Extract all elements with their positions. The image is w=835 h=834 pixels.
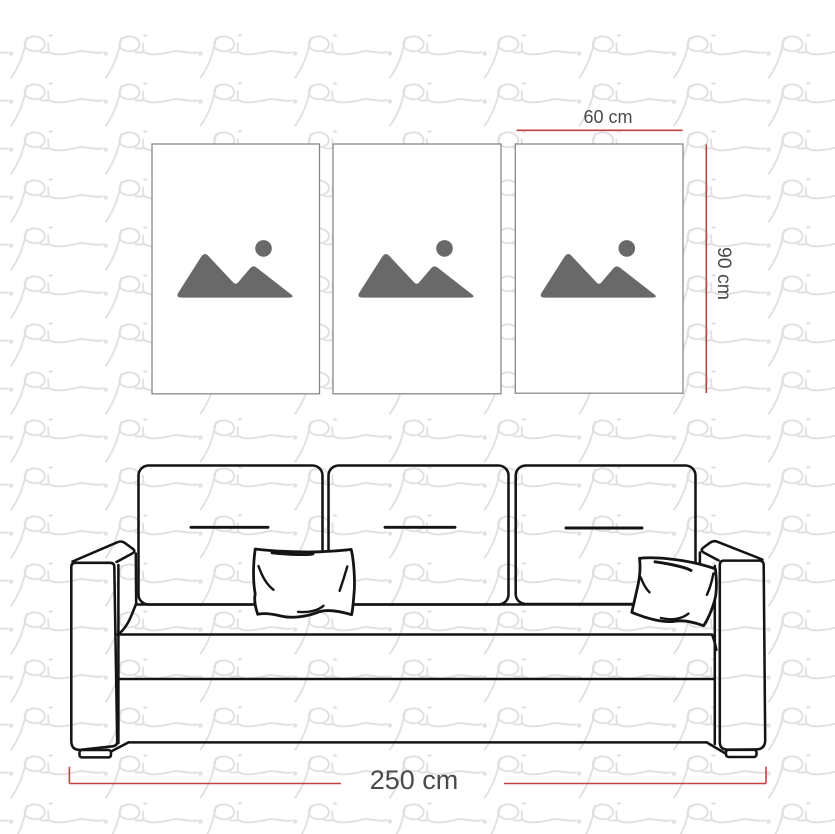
svg-text:60 cm: 60 cm — [583, 107, 632, 127]
svg-text:90 cm: 90 cm — [713, 247, 735, 300]
svg-text:250 cm: 250 cm — [370, 765, 459, 795]
